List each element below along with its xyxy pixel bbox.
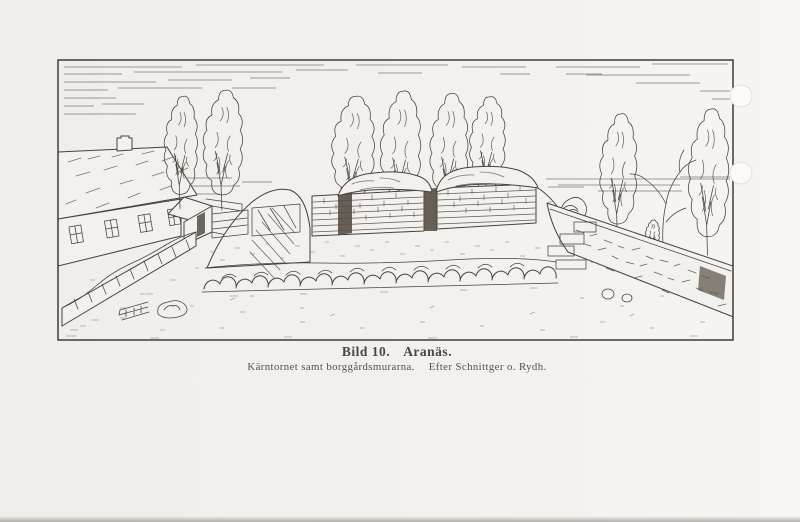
stone-heap: [158, 301, 187, 318]
poplar-tree: [600, 114, 637, 240]
fallen-stones: [602, 289, 632, 302]
wall-opening: [424, 188, 437, 231]
chimney: [117, 136, 132, 151]
punch-hole: [730, 162, 752, 184]
figure-credit: Efter Schnittger o. Rydh.: [429, 361, 547, 373]
aranas-illustration: [0, 0, 800, 522]
book-page: Bild 10.Aranäs. Kärntornet samt borggård…: [0, 0, 800, 522]
figure-caption: Bild 10.Aranäs. Kärntornet samt borggård…: [0, 344, 794, 373]
keep-mound: [207, 166, 592, 278]
farmhouse: [58, 136, 242, 266]
poplar-tree: [688, 109, 728, 256]
figure-label: Bild 10.: [342, 344, 390, 359]
stone-foundation: [119, 302, 149, 320]
figure-title: Aranäs.: [403, 344, 452, 359]
caption-title-line: Bild 10.Aranäs.: [0, 344, 794, 360]
wall-opening: [338, 192, 352, 235]
caption-subtitle-line: Kärntornet samt borggårdsmurarna.Efter S…: [0, 361, 794, 373]
figure-description: Kärntornet samt borggårdsmurarna.: [247, 361, 414, 373]
poplar-tree: [203, 90, 242, 210]
punch-hole: [730, 85, 752, 107]
porch-door: [197, 212, 205, 237]
